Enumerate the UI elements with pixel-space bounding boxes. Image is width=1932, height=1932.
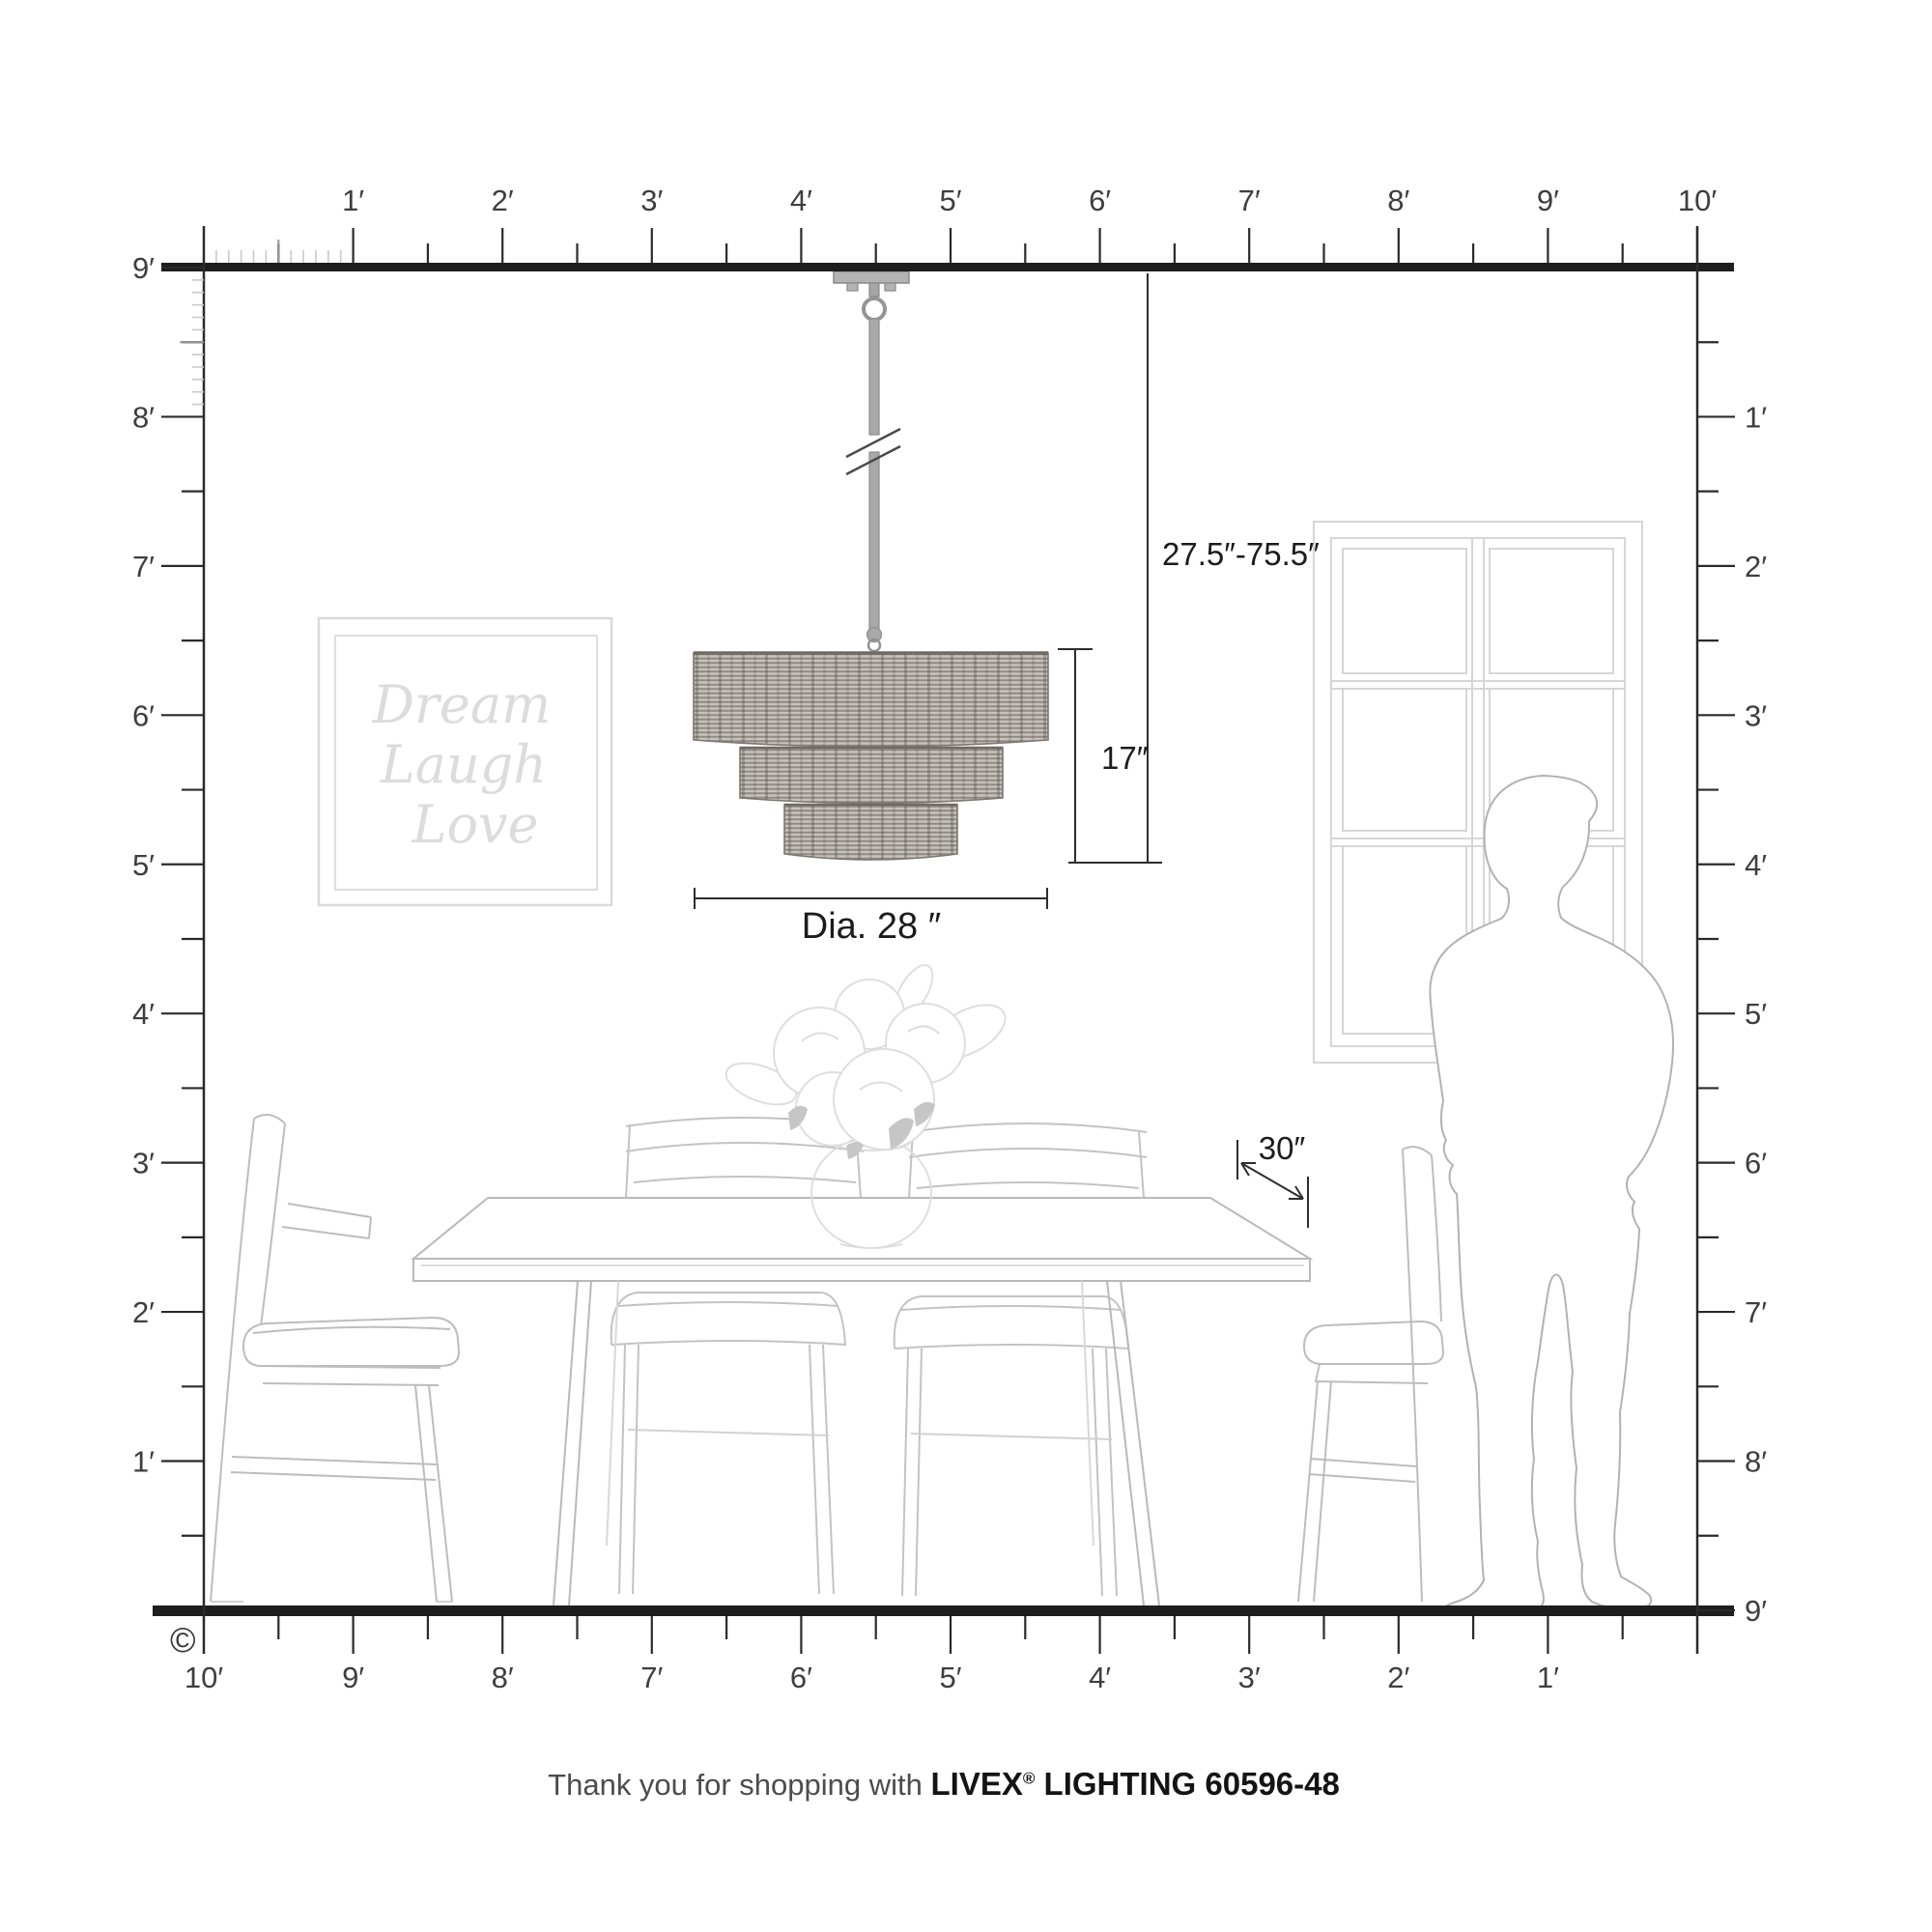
ruler-label: 7′ <box>640 1661 663 1694</box>
ruler-label: 8′ <box>1745 1445 1767 1479</box>
dimension-diagram: Dream Laugh Love <box>0 0 1932 1932</box>
ruler-label: 9′ <box>1745 1594 1767 1628</box>
ruler-label: 5′ <box>939 1661 961 1694</box>
ruler-label: 1′ <box>1745 400 1767 434</box>
ruler-label: 7′ <box>1745 1295 1767 1329</box>
ruler-label: 6′ <box>132 698 155 732</box>
footer-prefix: Thank you for shopping with <box>548 1768 930 1802</box>
ruler-label: 3′ <box>1238 1661 1261 1694</box>
back-chair-right <box>895 1123 1147 1596</box>
scene-canvas: Dream Laugh Love <box>0 0 1932 1932</box>
ruler-label: 5′ <box>939 184 961 217</box>
hanging-rod <box>846 319 900 651</box>
ruler-label: 8′ <box>132 400 155 434</box>
pendant-light <box>694 271 1048 860</box>
floor-line <box>153 1605 1734 1616</box>
ruler-label: 10′ <box>1678 184 1717 217</box>
side-chair-right <box>1298 1147 1443 1602</box>
copyright-symbol: © <box>170 1620 196 1660</box>
ruler-label: 8′ <box>492 1661 514 1694</box>
ceiling-line <box>161 263 1734 271</box>
ruler-label: 2′ <box>492 184 514 217</box>
ruler-label: 1′ <box>1537 1661 1559 1694</box>
ruler-label: 9′ <box>1537 184 1559 217</box>
ruler-label: 6′ <box>1089 184 1111 217</box>
wicker-shade <box>694 653 1048 860</box>
footer-brand: LIVEX <box>931 1766 1023 1802</box>
back-chair-left <box>611 1118 864 1594</box>
ruler-label: 9′ <box>132 251 155 285</box>
ruler-label: 7′ <box>1238 184 1261 217</box>
ruler-label: 6′ <box>1745 1147 1767 1180</box>
footer: Thank you for shopping with LIVEX® LIGHT… <box>548 1766 1340 1803</box>
hang-range-label: 27.5″-75.5″ <box>1162 536 1320 572</box>
ruler-label: 4′ <box>1089 1661 1111 1694</box>
ceiling-canopy <box>834 271 909 320</box>
clearance-label: 30″ <box>1259 1130 1306 1166</box>
ruler-label: 1′ <box>342 184 364 217</box>
wall-art-line-3: Love <box>412 794 539 855</box>
ruler-label: 7′ <box>132 550 155 583</box>
side-chair-left <box>211 1115 459 1602</box>
ruler-label: 6′ <box>790 1661 812 1694</box>
dining-table <box>413 1198 1310 1605</box>
wall-art-line-2: Laugh <box>380 734 547 795</box>
ruler-label: 3′ <box>640 184 663 217</box>
ruler-label: 2′ <box>1745 550 1767 583</box>
ruler-label: 4′ <box>790 184 812 217</box>
ruler-label: 3′ <box>132 1147 155 1180</box>
ruler-label: 2′ <box>1387 1661 1409 1694</box>
ruler-label: 10′ <box>185 1661 223 1694</box>
ruler-label: 4′ <box>132 997 155 1031</box>
ruler-label: 4′ <box>1745 848 1767 882</box>
ruler-label: 2′ <box>132 1295 155 1329</box>
bouquet <box>721 959 1013 1150</box>
ruler-label: 5′ <box>132 848 155 882</box>
shade-height-line <box>1058 649 1093 863</box>
ruler-label: 5′ <box>1745 997 1767 1031</box>
registered-trademark-icon: ® <box>1023 1770 1036 1788</box>
ruler-label: 9′ <box>342 1661 364 1694</box>
shade-height-label: 17″ <box>1101 740 1149 776</box>
diameter-label: Dia. 28 ″ <box>802 906 941 947</box>
footer-suffix: LIGHTING 60596-48 <box>1035 1766 1339 1802</box>
wall-art-line-1: Dream <box>372 674 551 735</box>
ruler-label: 3′ <box>1745 698 1767 732</box>
ruler-label: 8′ <box>1387 184 1409 217</box>
ruler-label: 1′ <box>132 1445 155 1479</box>
